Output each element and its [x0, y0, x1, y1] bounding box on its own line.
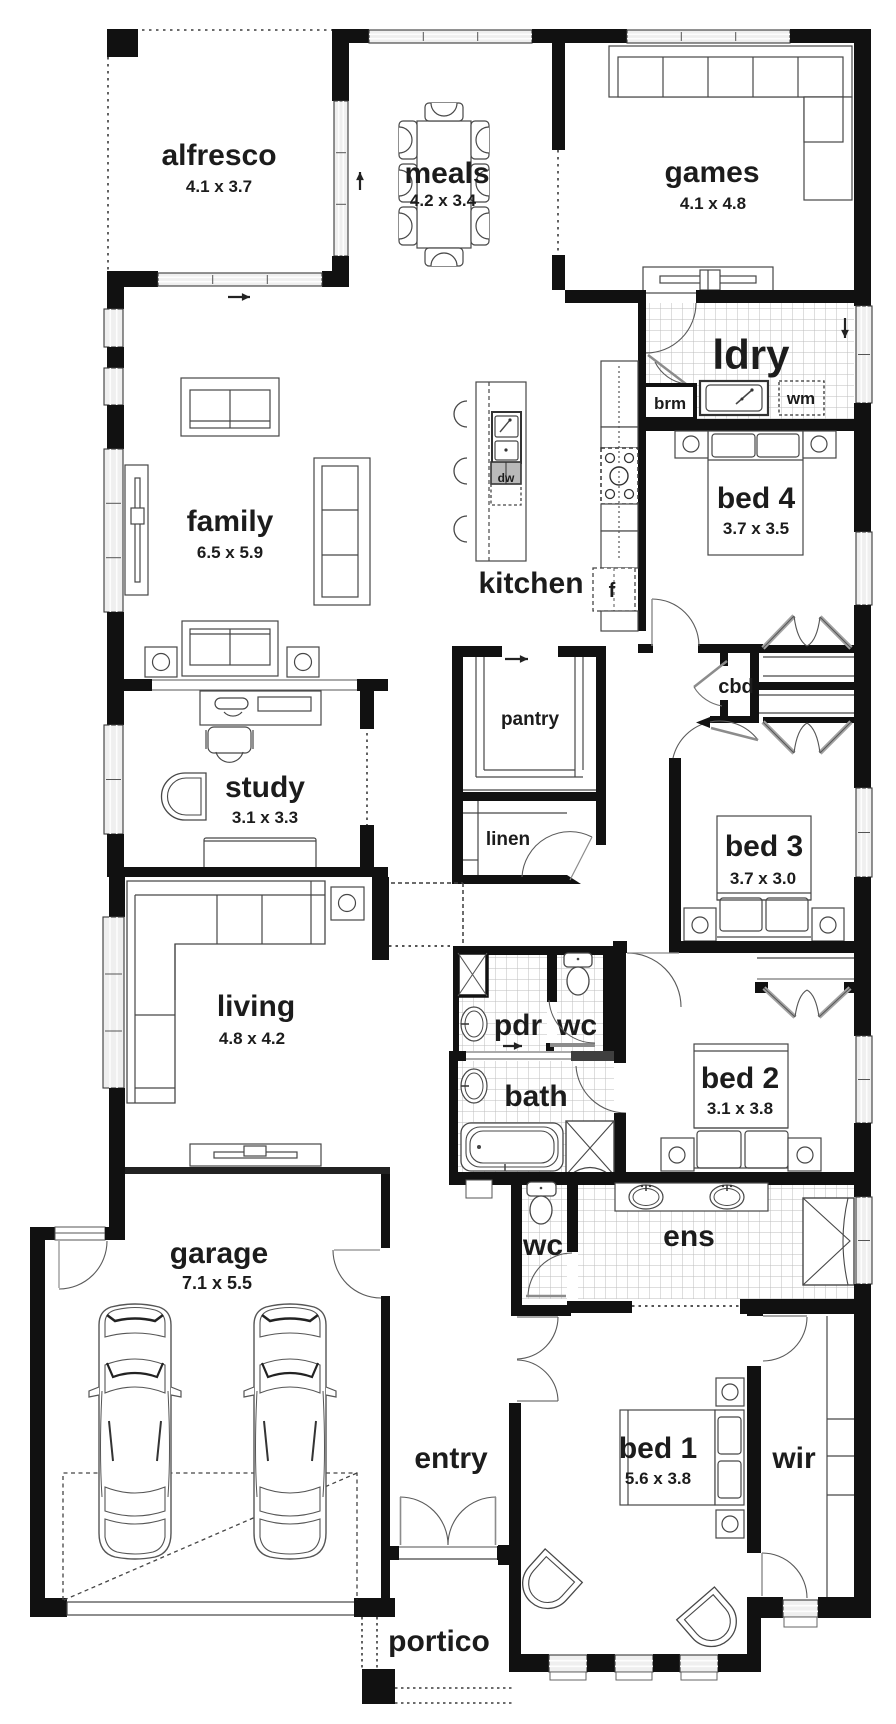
- svg-text:4.8 x 4.2: 4.8 x 4.2: [219, 1029, 285, 1048]
- svg-text:family: family: [187, 505, 274, 538]
- svg-text:study: study: [225, 771, 305, 804]
- svg-text:wm: wm: [786, 389, 815, 408]
- svg-text:living: living: [217, 990, 295, 1023]
- svg-text:linen: linen: [486, 829, 530, 850]
- svg-text:wir: wir: [771, 1442, 816, 1475]
- svg-text:5.6 x 3.8: 5.6 x 3.8: [625, 1469, 691, 1488]
- svg-text:3.7 x 3.5: 3.7 x 3.5: [723, 519, 789, 538]
- svg-text:cbd: cbd: [718, 676, 754, 698]
- svg-text:wc: wc: [522, 1229, 563, 1262]
- svg-text:garage: garage: [170, 1237, 268, 1270]
- svg-text:entry: entry: [414, 1442, 488, 1475]
- svg-text:3.1 x 3.8: 3.1 x 3.8: [707, 1099, 773, 1118]
- svg-text:3.7 x 3.0: 3.7 x 3.0: [730, 869, 796, 888]
- svg-text:bed 2: bed 2: [701, 1062, 779, 1095]
- svg-text:alfresco: alfresco: [161, 139, 276, 172]
- svg-text:6.5 x 5.9: 6.5 x 5.9: [197, 543, 263, 562]
- svg-text:f: f: [609, 580, 616, 602]
- svg-text:wc: wc: [556, 1009, 597, 1042]
- svg-text:kitchen: kitchen: [478, 567, 583, 600]
- svg-text:dw: dw: [498, 471, 515, 485]
- svg-text:brm: brm: [654, 394, 686, 413]
- svg-text:4.2 x 3.4: 4.2 x 3.4: [410, 191, 477, 210]
- svg-text:portico: portico: [388, 1625, 490, 1658]
- svg-text:4.1 x 3.7: 4.1 x 3.7: [186, 177, 252, 196]
- svg-text:bed 1: bed 1: [619, 1432, 697, 1465]
- svg-text:games: games: [664, 156, 759, 189]
- svg-text:ldry: ldry: [712, 331, 790, 378]
- svg-text:bed 3: bed 3: [725, 830, 803, 863]
- svg-text:bath: bath: [504, 1080, 567, 1113]
- svg-text:4.1 x 4.8: 4.1 x 4.8: [680, 194, 746, 213]
- svg-text:meals: meals: [404, 157, 489, 190]
- svg-text:pdr: pdr: [494, 1009, 543, 1042]
- svg-text:7.1 x 5.5: 7.1 x 5.5: [182, 1273, 252, 1293]
- svg-text:bed 4: bed 4: [717, 482, 796, 515]
- svg-text:ens: ens: [663, 1220, 715, 1253]
- svg-text:pantry: pantry: [501, 709, 560, 730]
- svg-text:3.1 x 3.3: 3.1 x 3.3: [232, 808, 298, 827]
